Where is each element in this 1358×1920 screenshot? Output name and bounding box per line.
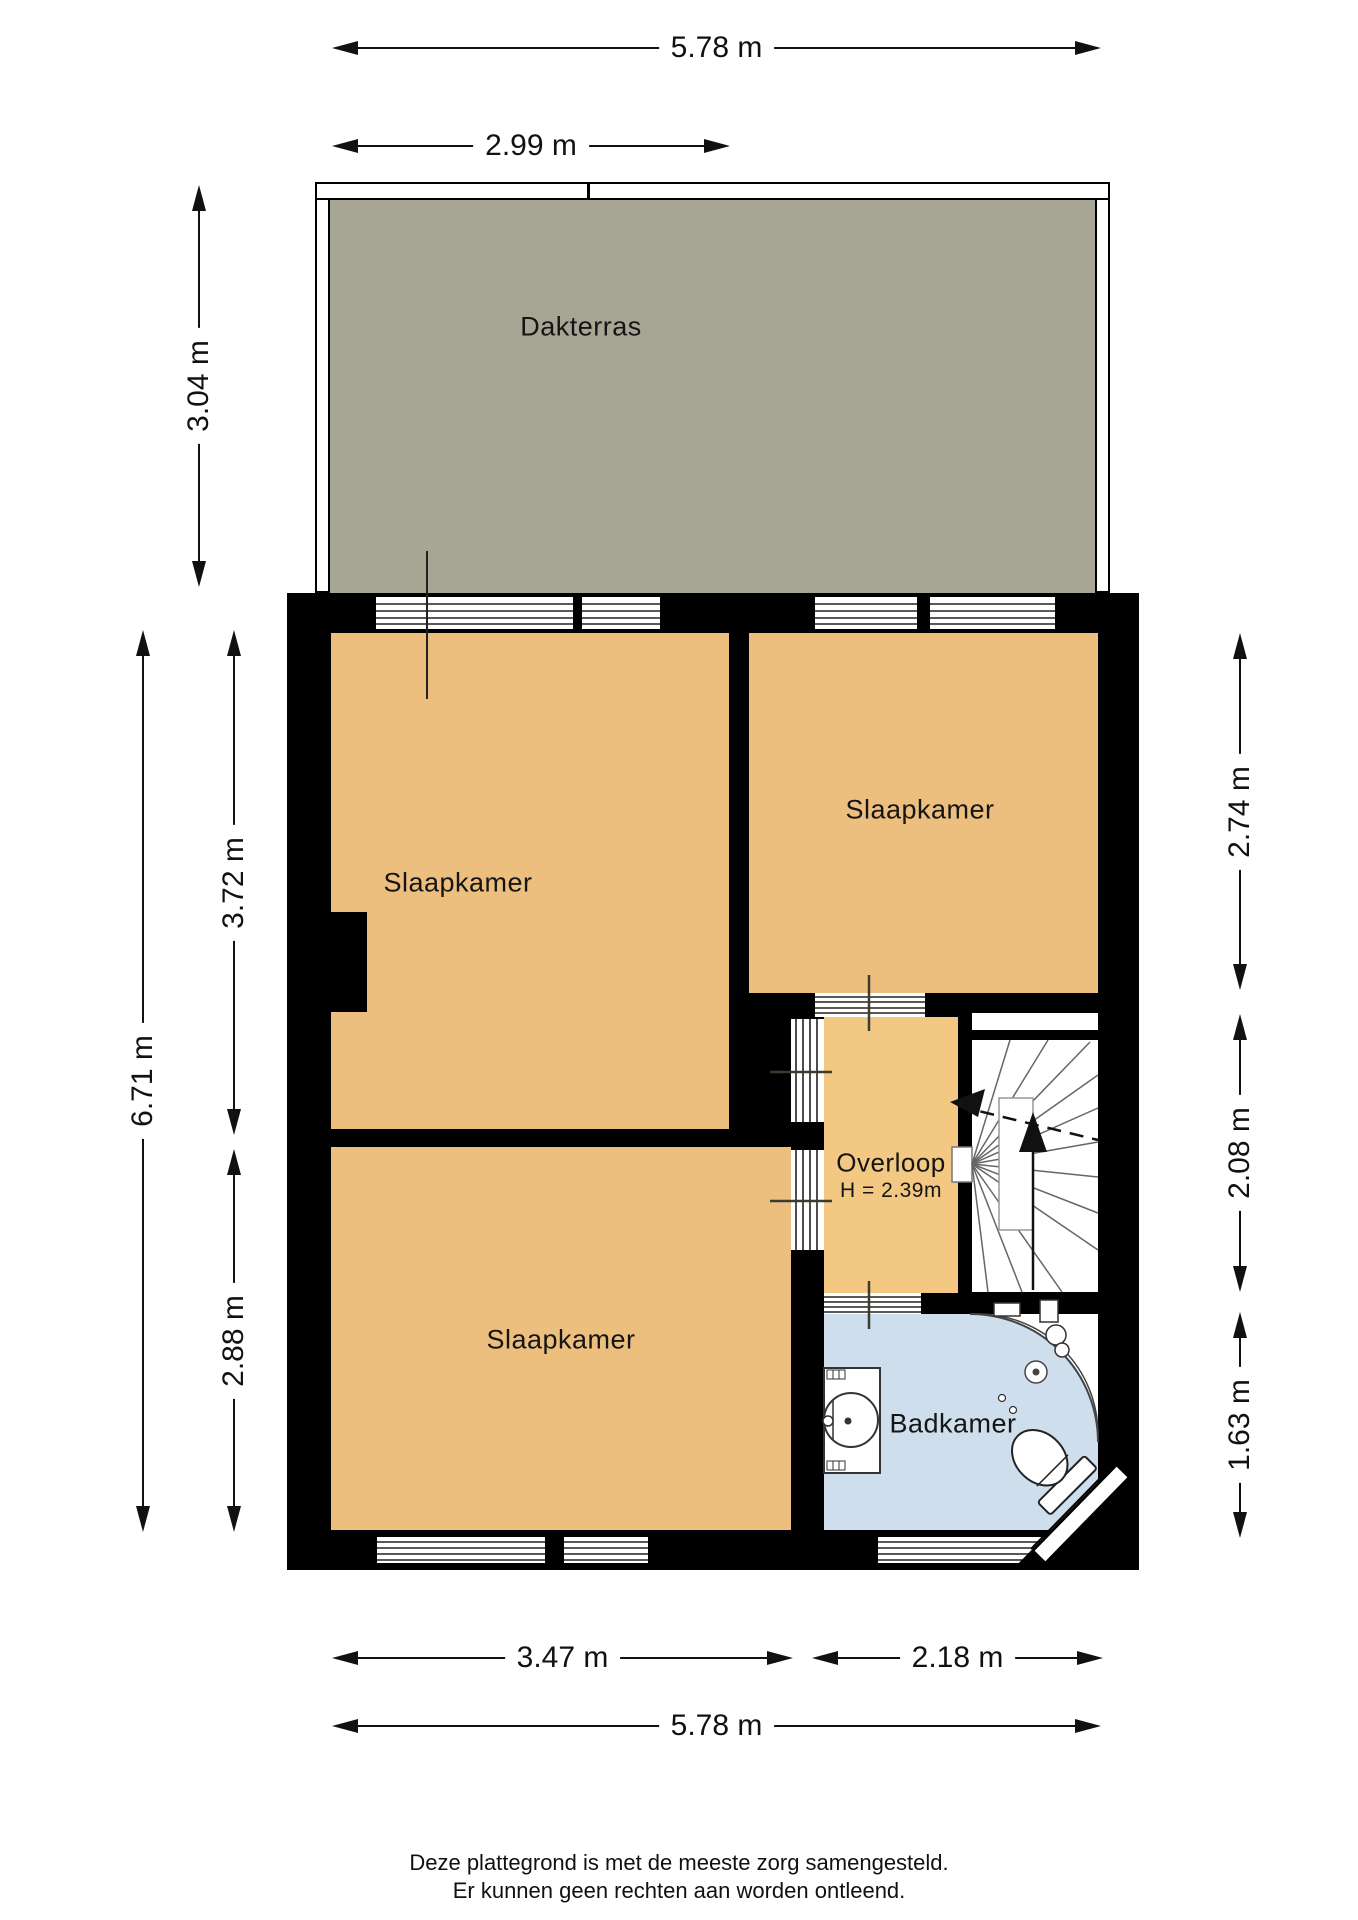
arrow-down-icon xyxy=(1233,964,1247,990)
dimension-bottom-slaapkamer: 3.47 m xyxy=(332,1634,793,1682)
arrow-right-icon xyxy=(767,1651,793,1665)
room-stairwell xyxy=(972,1040,1098,1292)
arrow-down-icon xyxy=(227,1109,241,1135)
arrow-right-icon xyxy=(704,139,730,153)
wall-chimney-notch xyxy=(330,912,367,1012)
dimension-label: 2.74 m xyxy=(1223,754,1257,870)
dimension-label: 3.47 m xyxy=(505,1641,621,1675)
arrow-up-icon xyxy=(1233,1014,1247,1040)
room-label-overloop: Overloop xyxy=(836,1148,946,1179)
room-dakterras xyxy=(330,200,1095,593)
dimension-label: 5.78 m xyxy=(659,31,775,65)
arrow-down-icon xyxy=(227,1506,241,1532)
dimension-label: 2.18 m xyxy=(900,1641,1016,1675)
dimension-label: 2.99 m xyxy=(473,129,589,163)
arrow-right-icon xyxy=(1075,41,1101,55)
arrow-up-icon xyxy=(227,630,241,656)
terrace-railing-right xyxy=(1095,198,1110,593)
arrow-up-icon xyxy=(136,630,150,656)
terrace-railing-left xyxy=(315,198,330,593)
dimension-left-total: 6.71 m xyxy=(119,630,167,1532)
arrow-right-icon xyxy=(1077,1651,1103,1665)
room-label-overloop-height: H = 2.39m xyxy=(840,1179,942,1203)
arrow-down-icon xyxy=(136,1506,150,1532)
dimension-left-slaapkamer-boven: 3.72 m xyxy=(210,630,258,1135)
dimension-terrace-depth: 3.04 m xyxy=(175,185,223,587)
dimension-top-terrace-partial: 2.99 m xyxy=(332,122,730,170)
arrow-down-icon xyxy=(1233,1512,1247,1538)
room-label-badkamer: Badkamer xyxy=(889,1409,1016,1440)
arrow-left-icon xyxy=(332,139,358,153)
room-label-slaapkamer-2: Slaapkamer xyxy=(845,795,994,826)
arrow-left-icon xyxy=(332,1719,358,1733)
arrow-left-icon xyxy=(812,1651,838,1665)
terrace-railing-top xyxy=(315,182,1110,200)
dimension-right-badkamer: 1.63 m xyxy=(1216,1312,1264,1538)
arrow-right-icon xyxy=(1075,1719,1101,1733)
dimension-label: 3.04 m xyxy=(182,328,216,444)
arrow-up-icon xyxy=(1233,1312,1247,1338)
dimension-label: 1.63 m xyxy=(1223,1367,1257,1483)
dimension-right-overloop: 2.08 m xyxy=(1216,1014,1264,1292)
dimension-label: 2.08 m xyxy=(1223,1095,1257,1211)
arrow-up-icon xyxy=(1233,633,1247,659)
dimension-right-slaapkamer: 2.74 m xyxy=(1216,633,1264,990)
dimension-bottom-badkamer: 2.18 m xyxy=(812,1634,1103,1682)
arrow-left-icon xyxy=(332,1651,358,1665)
dimension-left-slaapkamer-onder: 2.88 m xyxy=(210,1149,258,1532)
room-label-slaapkamer-3: Slaapkamer xyxy=(486,1325,635,1356)
room-label-slaapkamer-1: Slaapkamer xyxy=(383,868,532,899)
terrace-railing-divider xyxy=(587,182,590,200)
footer-disclaimer-line1: Deze plattegrond is met de meeste zorg s… xyxy=(0,1850,1358,1876)
dimension-top-total: 5.78 m xyxy=(332,24,1101,72)
arrow-down-icon xyxy=(1233,1266,1247,1292)
footer-disclaimer-line2: Er kunnen geen rechten aan worden ontlee… xyxy=(0,1878,1358,1904)
arrow-left-icon xyxy=(332,41,358,55)
dimension-label: 3.72 m xyxy=(217,825,251,941)
room-label-dakterras: Dakterras xyxy=(520,312,642,343)
arrow-up-icon xyxy=(192,185,206,211)
dimension-bottom-total: 5.78 m xyxy=(332,1702,1101,1750)
dimension-label: 5.78 m xyxy=(659,1709,775,1743)
arrow-down-icon xyxy=(192,561,206,587)
dimension-label: 6.71 m xyxy=(126,1023,160,1139)
dimension-label: 2.88 m xyxy=(217,1283,251,1399)
floorplan-canvas: 5.78 m 2.99 m 3.04 m 6.71 m 3.72 m 2.88 … xyxy=(0,0,1358,1920)
arrow-up-icon xyxy=(227,1149,241,1175)
